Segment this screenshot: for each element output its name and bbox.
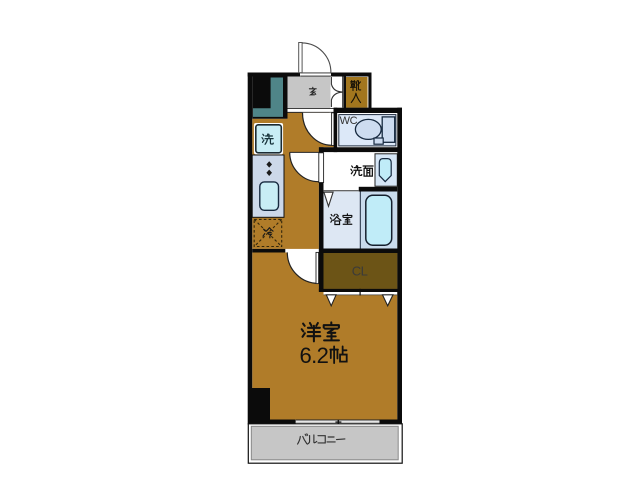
svg-text:CL: CL bbox=[352, 263, 368, 278]
svg-text:6.2: 6.2 bbox=[300, 343, 329, 368]
svg-text:WC: WC bbox=[340, 115, 358, 127]
